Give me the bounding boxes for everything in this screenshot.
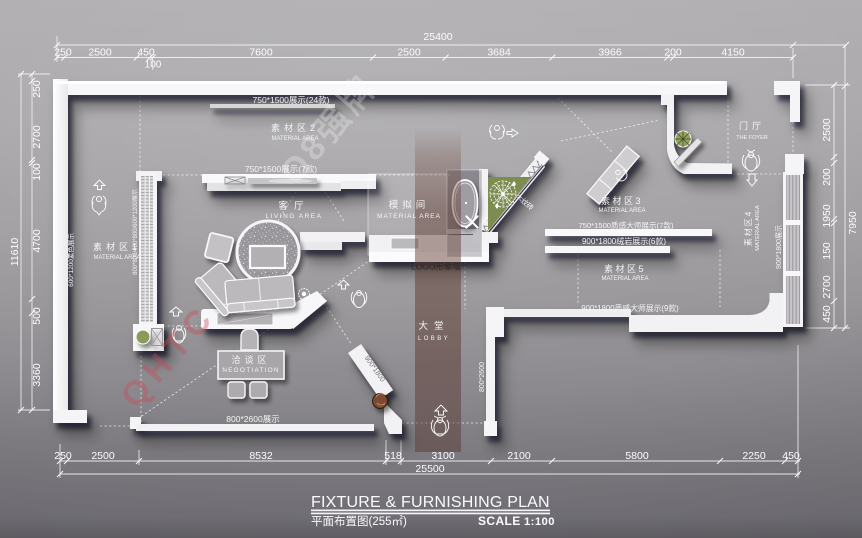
svg-text:NEGOTIATION: NEGOTIATION — [222, 367, 280, 374]
svg-text:SCALE: SCALE — [478, 514, 521, 528]
svg-text:250: 250 — [31, 80, 43, 98]
svg-text:大堂: 大堂 — [418, 320, 449, 332]
svg-text:11610: 11610 — [9, 238, 21, 267]
svg-text:平面布置图(255㎡): 平面布置图(255㎡) — [311, 515, 407, 528]
svg-text:2500: 2500 — [88, 47, 112, 59]
svg-text:200: 200 — [664, 47, 682, 59]
svg-text:25400: 25400 — [423, 31, 452, 43]
svg-text:LIVING AREA: LIVING AREA — [266, 213, 323, 220]
svg-text:3100: 3100 — [431, 450, 455, 462]
svg-text:5800: 5800 — [625, 450, 649, 462]
svg-text:200: 200 — [821, 168, 833, 186]
svg-text:250: 250 — [54, 450, 72, 462]
svg-text:450: 450 — [782, 450, 800, 462]
svg-text:FIXTURE & FURNISHING PLAN: FIXTURE & FURNISHING PLAN — [311, 494, 550, 511]
svg-text:MATERIAL AREA: MATERIAL AREA — [377, 213, 441, 220]
svg-text:模拟间: 模拟间 — [389, 199, 430, 211]
svg-text:100: 100 — [145, 60, 162, 71]
svg-text:4700: 4700 — [31, 229, 43, 253]
svg-text:150: 150 — [821, 242, 833, 260]
svg-text:518: 518 — [384, 450, 402, 462]
svg-text:3360: 3360 — [31, 363, 43, 387]
svg-text:MATERIAL AREA: MATERIAL AREA — [598, 208, 645, 214]
svg-text:4150: 4150 — [721, 47, 745, 59]
svg-text:MATERIAL AREA: MATERIAL AREA — [601, 276, 648, 282]
svg-text:250: 250 — [54, 47, 72, 59]
svg-text:7600: 7600 — [249, 47, 273, 59]
svg-text:LOBBY: LOBBY — [418, 336, 450, 342]
svg-text:素材区4: 素材区4 — [743, 210, 753, 246]
svg-text:洽谈区: 洽谈区 — [231, 354, 270, 365]
svg-text:2500: 2500 — [397, 47, 421, 59]
svg-text:LOGO形象墙: LOGO形象墙 — [411, 262, 462, 272]
svg-text:7950: 7950 — [847, 211, 859, 235]
svg-text:750*1500质感大师展示(7款): 750*1500质感大师展示(7款) — [579, 220, 674, 230]
svg-text:2100: 2100 — [507, 450, 531, 462]
svg-text:3966: 3966 — [598, 47, 622, 59]
svg-text:900*1800绒岩展示(6款): 900*1800绒岩展示(6款) — [582, 236, 666, 246]
svg-text:门厅: 门厅 — [739, 120, 765, 131]
svg-text:2700: 2700 — [821, 275, 833, 299]
svg-text:1950: 1950 — [821, 204, 833, 228]
svg-text:2700: 2700 — [31, 125, 43, 149]
svg-text:100: 100 — [31, 163, 43, 181]
svg-text:素材区3: 素材区3 — [601, 195, 643, 206]
svg-text:客厅: 客厅 — [278, 200, 309, 212]
svg-text:900*1800质感大师展示(9款): 900*1800质感大师展示(9款) — [581, 303, 679, 313]
svg-text:1:100: 1:100 — [524, 516, 555, 528]
svg-text:800*800/400*800/600*1200展示: 800*800/400*800/600*1200展示 — [132, 189, 139, 275]
svg-text:2500: 2500 — [821, 118, 833, 142]
svg-text:900*1800展示: 900*1800展示 — [775, 225, 783, 269]
svg-text:450: 450 — [821, 305, 833, 323]
svg-text:木纹砖: 木纹砖 — [514, 192, 536, 212]
svg-text:800*2600展示: 800*2600展示 — [226, 414, 279, 424]
svg-text:750*1500展示(24款): 750*1500展示(24款) — [252, 95, 329, 105]
svg-text:25500: 25500 — [415, 463, 444, 475]
svg-text:MATERIAL AREA: MATERIAL AREA — [755, 205, 761, 251]
svg-text:8532: 8532 — [249, 450, 273, 462]
svg-text:500: 500 — [31, 307, 43, 325]
svg-text:素材区5: 素材区5 — [604, 263, 646, 274]
svg-text:800*2600: 800*2600 — [479, 362, 486, 392]
svg-text:600*1200素色展示: 600*1200素色展示 — [66, 233, 75, 287]
svg-text:THE FOYER: THE FOYER — [736, 135, 768, 141]
svg-text:2250: 2250 — [742, 450, 766, 462]
svg-text:3684: 3684 — [487, 47, 511, 59]
svg-text:450: 450 — [137, 47, 155, 59]
svg-text:2500: 2500 — [91, 450, 115, 462]
